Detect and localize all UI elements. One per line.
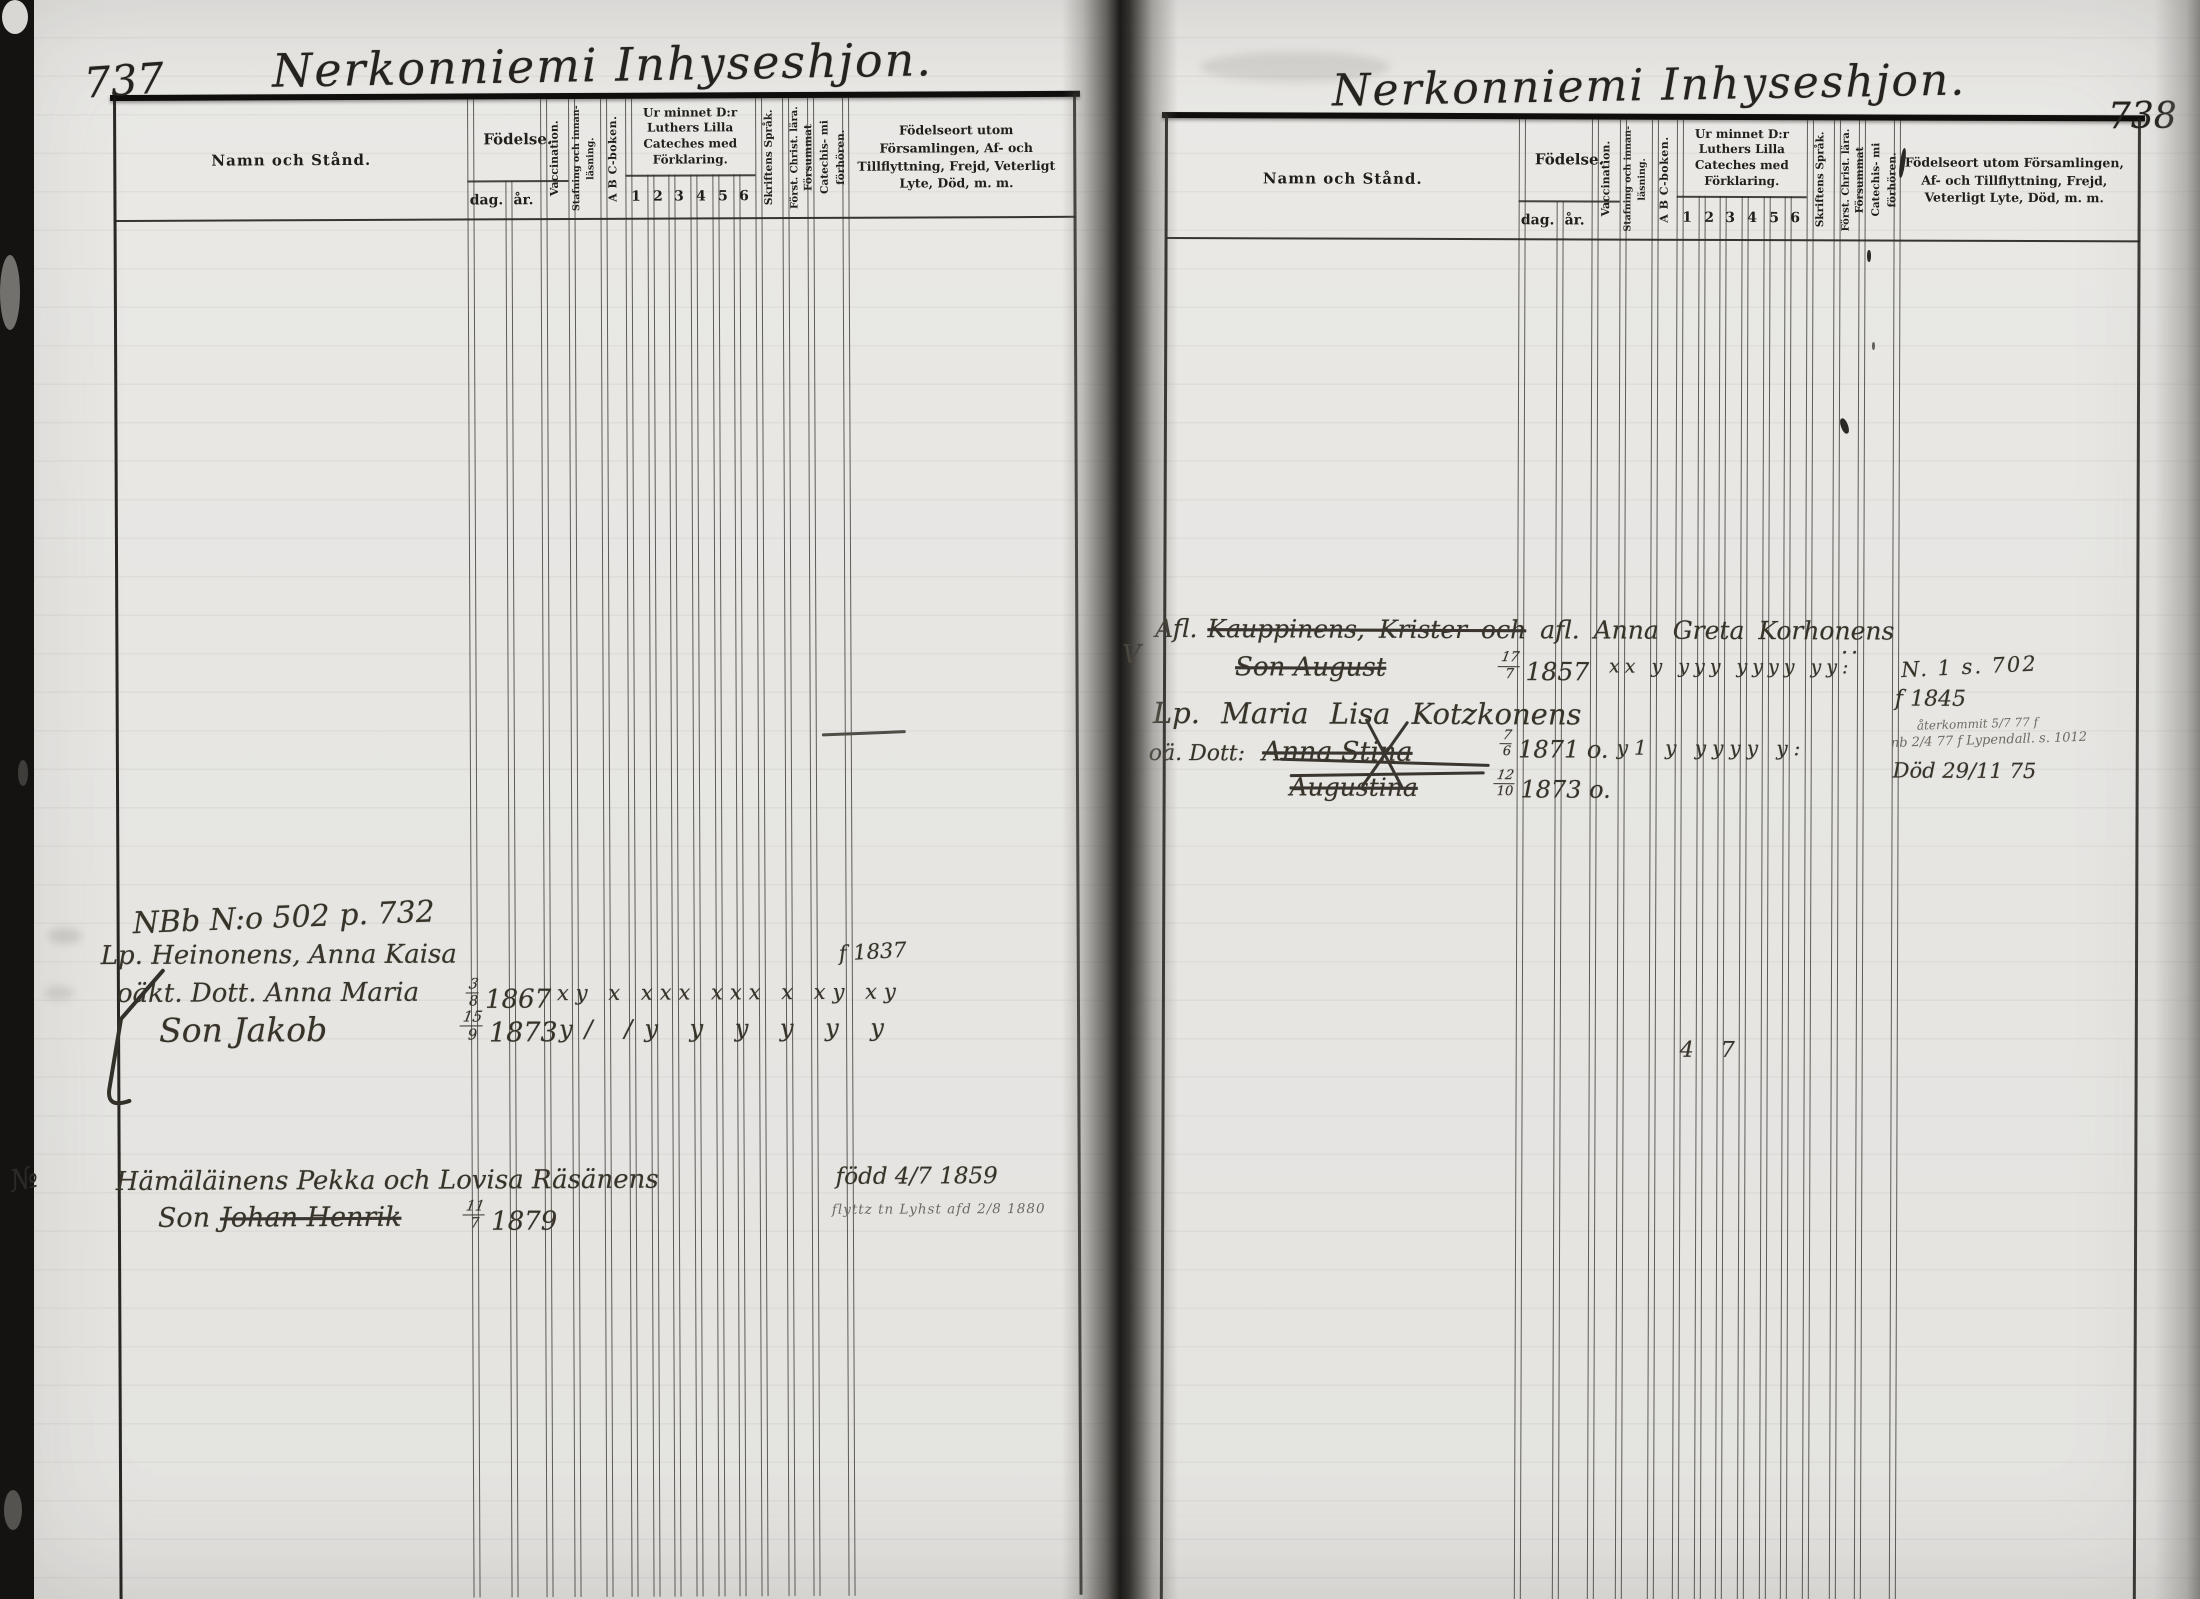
entry-child-name: Son August [1225, 652, 1386, 683]
birth-date-fraction: 38 [467, 977, 480, 1009]
margin-note: f 1837 [838, 938, 907, 966]
table-column-rule [782, 98, 796, 1596]
margin-scribble: № [7, 1159, 42, 1199]
table-column-rule [734, 174, 747, 1596]
entry-head-name: Lp. Maria Lisa Kotzkonens [1153, 696, 1582, 731]
table-column-rule [1737, 196, 1749, 1599]
margin-note: återkommit 5/7 77 f [1917, 715, 2039, 733]
birth-date: 1171879 [464, 1199, 558, 1237]
birth-date: 1591873 [461, 1009, 558, 1048]
table-column-rule [1854, 120, 1866, 1599]
ink-speck [1872, 342, 1875, 350]
ink-speck [1867, 250, 1871, 262]
table-column-rule [1829, 120, 1841, 1599]
table-column-rule [1889, 121, 1901, 1599]
entry-child-name: Son Jakob [159, 1010, 327, 1050]
paper-smudge [48, 928, 82, 944]
birth-year: 1873 o. [1520, 775, 1610, 803]
birth-date: 761871 o. [1501, 729, 1609, 764]
table-left-page: Namn och Stånd. Födelse. dag. år. Vaccin… [115, 91, 1082, 1599]
birth-date-fraction: 1210 [1495, 769, 1516, 798]
entry-text: Son [158, 1203, 210, 1234]
margin-note: född 4/7 1859 [836, 1163, 998, 1190]
margin-note: nb 2/4 77 f Lypendall. s. 1012 [1891, 730, 2088, 751]
paper-tear [2, 0, 28, 34]
table-left-border [113, 98, 123, 1599]
table-column-rule [1672, 120, 1684, 1599]
table-column-rule [842, 98, 856, 1596]
paper-tear [18, 760, 28, 786]
table-column-rule [1587, 119, 1599, 1599]
table-column-rule [1615, 120, 1627, 1599]
birth-date: 1771857 [1499, 651, 1589, 686]
birth-year: 1857 [1525, 657, 1589, 686]
entry-text: oä. Dott: [1149, 741, 1245, 766]
birth-day: 7 [1499, 729, 1514, 744]
grade-marks-row: xx y yyy yyyy yy: [1609, 656, 1853, 679]
table-column-rule [647, 175, 660, 1597]
entry-head-name: Afl.Kauppinens, Krister och afl. Anna Gr… [1155, 614, 1894, 646]
table-column-rule [1802, 120, 1814, 1599]
birth-month: 6 [1501, 744, 1513, 758]
grade-marks-row: y1 y yyyy y: [1617, 736, 1807, 761]
birth-month: 7 [1499, 667, 1521, 682]
margin-note: Död 29/11 75 [1893, 759, 2037, 784]
table-column-rule [669, 175, 682, 1597]
margin-note: N. 1 s. 702 [1901, 651, 2039, 682]
pen-dash-mark [822, 730, 906, 736]
page-right-edge-shadow [2154, 0, 2200, 1599]
page-title-right: Nerkonniemi Inhyseshjon. [1332, 54, 1967, 116]
struck-name: Kauppinens, Krister och [1207, 614, 1526, 644]
birth-year: 1873 [489, 1017, 558, 1048]
table-column-rule [1693, 196, 1705, 1599]
birth-date-fraction: 159 [461, 1009, 484, 1042]
birth-year: 1879 [491, 1207, 557, 1237]
margin-note: f 1845 [1895, 687, 1966, 712]
table-column-rule [540, 99, 554, 1597]
birth-day: 3 [465, 977, 481, 993]
table-column-rule [568, 99, 582, 1597]
birth-date: 12101873 o. [1495, 769, 1611, 804]
birth-date-fraction: 76 [1501, 729, 1513, 758]
book-binding-edge [0, 0, 34, 1599]
birth-day: 17 [1498, 651, 1522, 667]
table-column-rule [505, 181, 518, 1597]
table-right-page: Namn och Stånd. Födelse. dag. år. Vaccin… [1162, 112, 2140, 1599]
margin-note: flyttz tn Lyhst afd 2/8 1880 [832, 1201, 1046, 1218]
page-number-left: 737 [82, 53, 165, 107]
table-right-border [1073, 94, 1083, 1595]
birth-month: 7 [464, 1216, 486, 1231]
grade-marks-row: xy x xxx xxx x xy xy [557, 980, 903, 1006]
column-header-luthers-catechism: Ur minnet D:r Luthers Lilla Cateches med… [627, 100, 753, 173]
table-column-rule [1552, 201, 1564, 1599]
column-header-name-and-rank: Namn och Stånd. [1167, 118, 1519, 238]
table-column-rule [690, 174, 703, 1596]
table-column-rule [600, 99, 614, 1597]
margin-scribble: V [1122, 640, 1141, 670]
entry-reference-number: NBb N:o 502 p. 732 [132, 894, 435, 941]
table-column-rule [1780, 196, 1792, 1599]
paper-smudge [44, 986, 74, 1000]
table-column-rule [625, 99, 639, 1597]
page-number-right: 738 [2108, 96, 2177, 137]
birth-day: 12 [1493, 769, 1517, 784]
checkmark-bracket [99, 967, 172, 1117]
birth-day: 11 [462, 1199, 487, 1215]
table-column-rule [1715, 196, 1727, 1599]
table-left-border [1160, 115, 1168, 1599]
scanned-book-spread: 737 Nerkonniemi Inhyseshjon. Nerkonniemi… [0, 0, 2200, 1599]
entry-child-name: SonJohan Henrik [158, 1202, 402, 1234]
table-column-rule [1514, 119, 1526, 1599]
struck-name: Son August [1235, 652, 1386, 683]
paper-tear [4, 1490, 22, 1530]
page-title-left: Nerkonniemi Inhyseshjon. [272, 32, 934, 98]
column-header-name-and-rank: Namn och Stånd. [115, 99, 468, 220]
column-header-luthers-catechism: Ur minnet D:r Luthers Lilla Cateches med… [1679, 122, 1805, 194]
table-column-rule [712, 174, 725, 1596]
birth-year: 1871 o. [1518, 735, 1608, 763]
birth-month: 10 [1495, 784, 1516, 798]
birth-month: 9 [461, 1026, 484, 1042]
table-column-rule [755, 98, 769, 1596]
table-column-rule [467, 99, 481, 1597]
birth-date-fraction: 117 [464, 1199, 486, 1231]
entry-text: Afl. [1155, 614, 1197, 643]
entry-head-name: Hämäläinens Pekka och Lovisa Räsänens [116, 1165, 659, 1197]
table-column-rule [807, 98, 821, 1596]
table-column-rule [1647, 120, 1659, 1599]
table-right-border [2133, 118, 2141, 1599]
birth-day: 15 [460, 1009, 486, 1026]
column-header-birthplace-migration-notes: Födelseort utom Församlingen, Af- och Ti… [842, 99, 1070, 215]
pen-tick-marks: 4 7 [1680, 1038, 1745, 1063]
grade-marks-row: y/ /y y y y y y [559, 1014, 896, 1043]
paper-tear [0, 255, 20, 330]
column-header-birthplace-migration-notes: Födelseort utom Församlingen, Af- och Ti… [1894, 123, 2135, 239]
birth-date-fraction: 177 [1499, 651, 1521, 682]
entry-child-name: oä. Dott: Anna Stina [1149, 736, 1413, 768]
struck-name: Johan Henrik [220, 1202, 401, 1234]
table-column-rule [1758, 196, 1770, 1599]
